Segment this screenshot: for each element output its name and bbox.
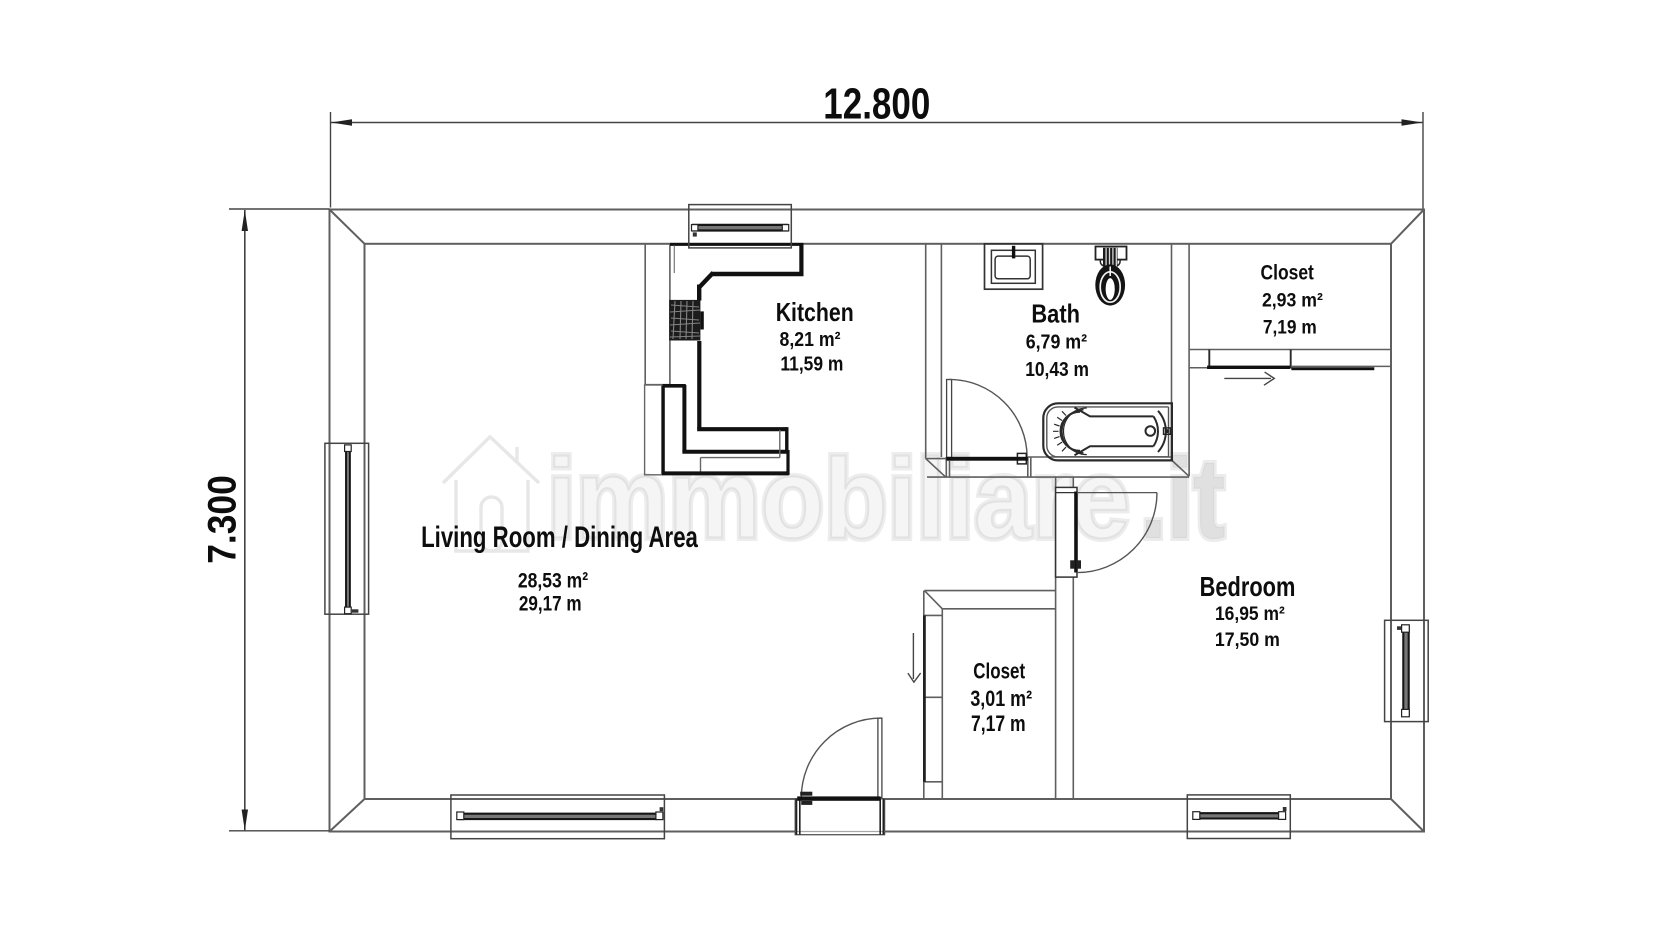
svg-text:7,17 m: 7,17 m (971, 711, 1026, 736)
svg-text:Bedroom: Bedroom (1200, 571, 1296, 602)
svg-text:12.800: 12.800 (823, 81, 930, 129)
svg-text:29,17 m: 29,17 m (519, 592, 582, 616)
svg-text:3,01 m²: 3,01 m² (970, 686, 1032, 711)
svg-text:28,53 m²: 28,53 m² (518, 569, 588, 593)
svg-text:17,50 m: 17,50 m (1215, 630, 1280, 651)
svg-text:Closet: Closet (973, 658, 1025, 683)
svg-text:Kitchen: Kitchen (776, 297, 854, 327)
svg-text:Living Room / Dining Area: Living Room / Dining Area (421, 521, 698, 554)
svg-text:16,95 m²: 16,95 m² (1215, 604, 1285, 625)
svg-text:Closet: Closet (1261, 262, 1314, 285)
svg-text:2,93 m²: 2,93 m² (1262, 290, 1323, 312)
svg-text:11,59 m: 11,59 m (780, 354, 843, 376)
svg-text:6,79 m²: 6,79 m² (1026, 330, 1088, 353)
svg-text:8,21 m²: 8,21 m² (780, 329, 841, 351)
svg-text:7.300: 7.300 (200, 475, 244, 564)
svg-text:.it: .it (1140, 436, 1225, 562)
svg-text:10,43 m: 10,43 m (1025, 358, 1089, 381)
svg-text:Bath: Bath (1031, 299, 1080, 329)
svg-text:7,19 m: 7,19 m (1263, 316, 1317, 338)
